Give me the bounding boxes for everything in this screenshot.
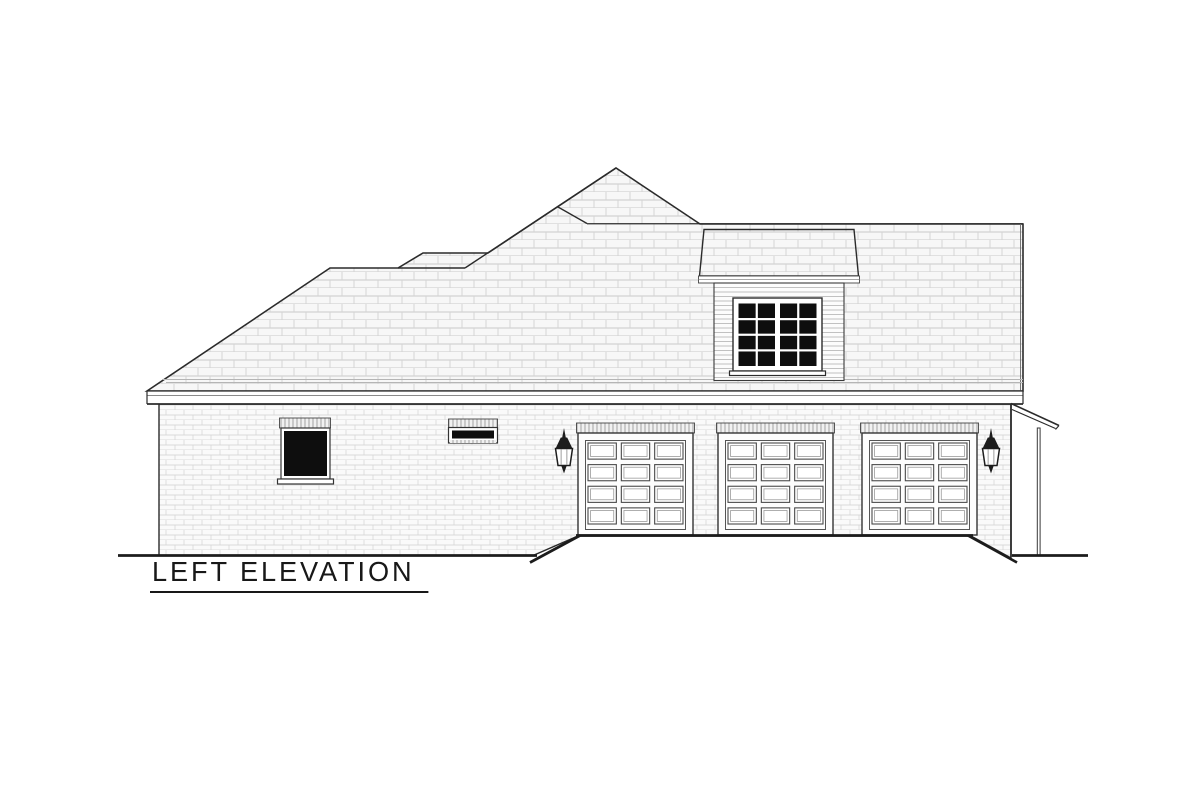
elevation-linework	[0, 0, 1200, 800]
vent-sill-hatch	[450, 440, 496, 443]
right-porch	[1011, 404, 1059, 558]
garage-door-1	[577, 423, 695, 535]
window-center-mullion	[775, 304, 780, 367]
dormer-roof	[700, 230, 859, 277]
dormer	[699, 230, 860, 381]
garage-doors	[577, 423, 979, 535]
porch-shed-roof-top	[1011, 404, 1059, 426]
roof-outline	[147, 168, 1023, 391]
eave-fascia	[147, 391, 1023, 404]
dormer-window-sill	[730, 371, 826, 376]
garage-door-header	[717, 423, 835, 433]
dormer-window-glass	[739, 304, 817, 367]
garage-door-header	[577, 423, 695, 433]
garage-door-2	[717, 423, 835, 535]
vent-glass-slot	[452, 431, 494, 439]
window-glass	[284, 431, 327, 476]
porch-post	[1037, 428, 1040, 555]
window-muntin	[797, 304, 799, 367]
porch-roof-end-cap	[1056, 426, 1060, 430]
fascia-band	[147, 391, 1023, 404]
garage-door-3	[861, 423, 979, 535]
vent-brick-header	[449, 419, 498, 428]
window-muntin	[756, 304, 758, 367]
drawing-title: LEFT ELEVATION	[150, 556, 428, 593]
main-roof	[147, 168, 1023, 391]
left-dark-window	[278, 418, 334, 484]
lantern-body-icon	[556, 449, 573, 466]
elevation-drawing-sheet: LEFT ELEVATION	[0, 0, 1200, 800]
garage-door-header	[861, 423, 979, 433]
vent-slot-window	[449, 419, 498, 443]
lantern-body-icon	[983, 449, 1000, 466]
window-sill	[278, 479, 334, 484]
porch-shed-roof-bottom	[1012, 410, 1056, 429]
window-brick-header	[280, 418, 331, 428]
